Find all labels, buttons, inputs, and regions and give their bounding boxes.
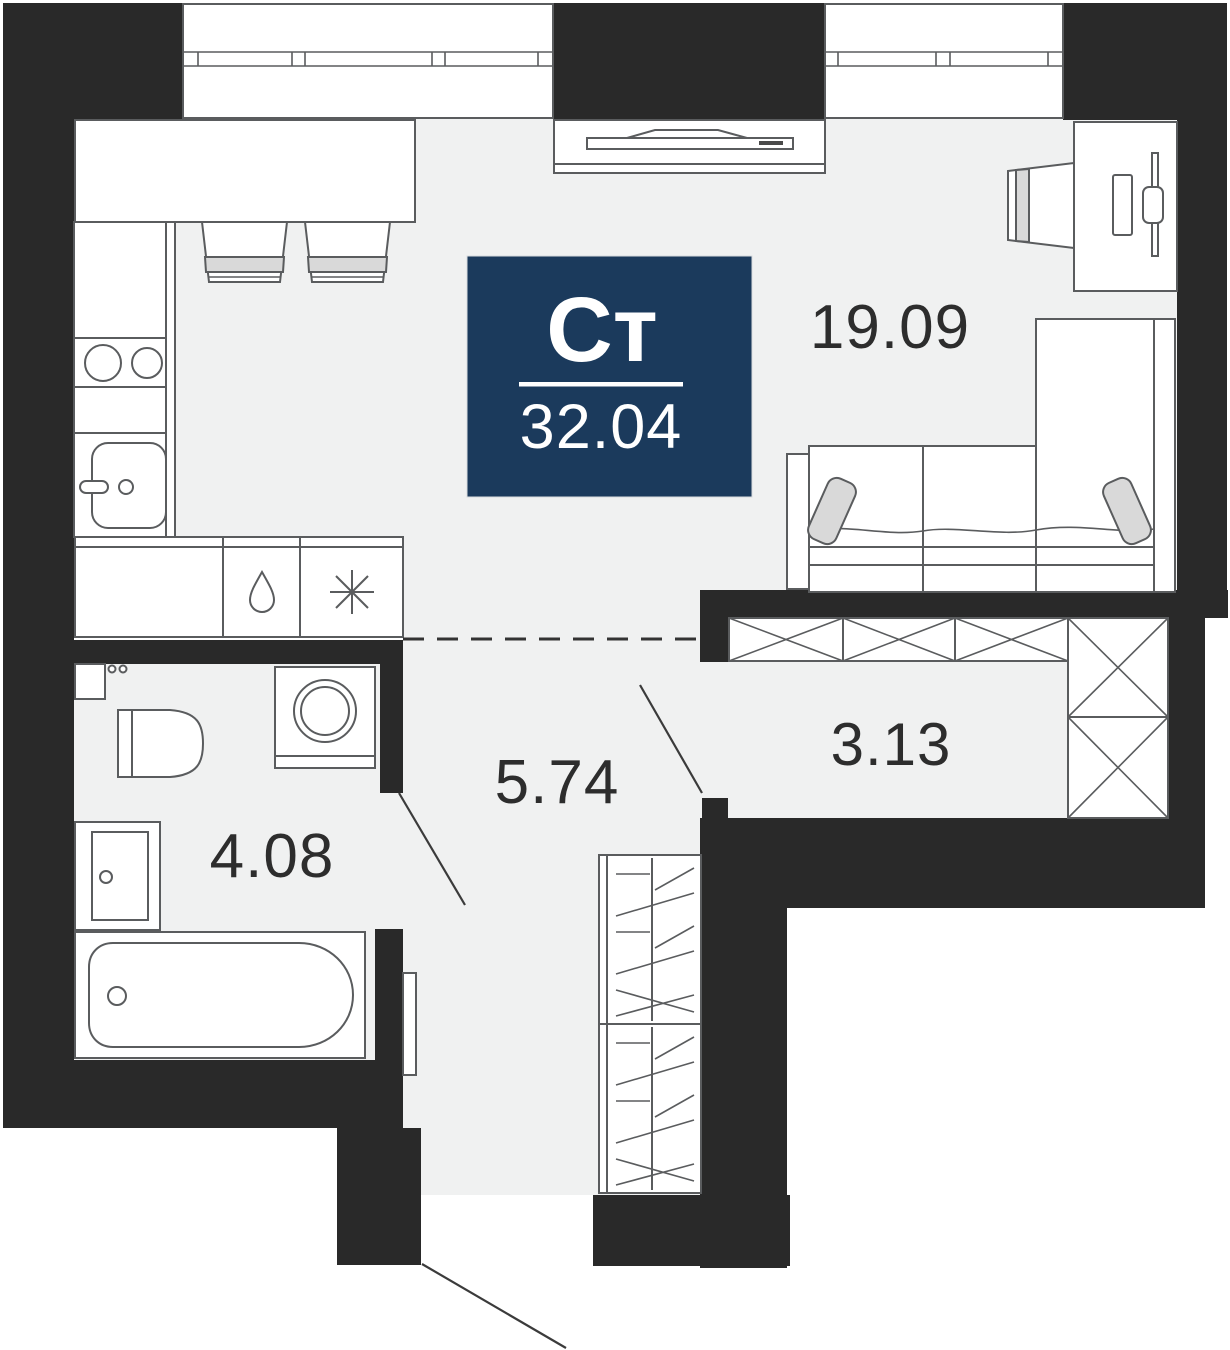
unit-badge[interactable]: Ст 32.04 — [467, 256, 752, 497]
room-area-label-bathroom: 4.08 — [210, 822, 335, 891]
room-area-label-hallway: 5.74 — [495, 748, 620, 817]
bathtub — [75, 932, 365, 1058]
window-top-left — [183, 4, 553, 118]
wardrobe-x-tall — [1068, 618, 1168, 818]
door-leaf-panel — [403, 973, 416, 1075]
bar-stool-2 — [305, 222, 390, 282]
window-top-right — [825, 4, 1063, 118]
toilet — [118, 710, 203, 777]
bathroom-sink — [75, 822, 160, 930]
room-area-label-wardrobe: 3.13 — [831, 711, 952, 778]
snowflake-icon — [330, 570, 374, 614]
room-area-label-living: 19.09 — [810, 293, 970, 362]
wardrobe-x-row — [729, 618, 1068, 661]
kitchen-counter — [75, 120, 415, 222]
kitchen-sink — [80, 443, 166, 528]
tv-console — [554, 120, 825, 173]
entry-door-swing-line — [422, 1264, 566, 1348]
floorplan: 19.09 5.74 4.08 3.13 Ст 32.04 — [0, 0, 1230, 1350]
desk-chair — [1008, 163, 1074, 248]
bar-stool-1 — [202, 222, 287, 282]
desk — [1074, 122, 1177, 291]
unit-area-value: 32.04 — [520, 392, 683, 462]
kitchen-lower-cabinets — [75, 537, 403, 637]
unit-type-label: Ст — [546, 279, 658, 381]
sofa-side-wardrobe — [1036, 319, 1154, 592]
hallway-wardrobe — [599, 855, 701, 1193]
washing-machine — [275, 667, 375, 768]
floorplan-canvas: 19.09 5.74 4.08 3.13 Ст 32.04 — [0, 0, 1230, 1350]
badge-divider — [519, 382, 683, 387]
